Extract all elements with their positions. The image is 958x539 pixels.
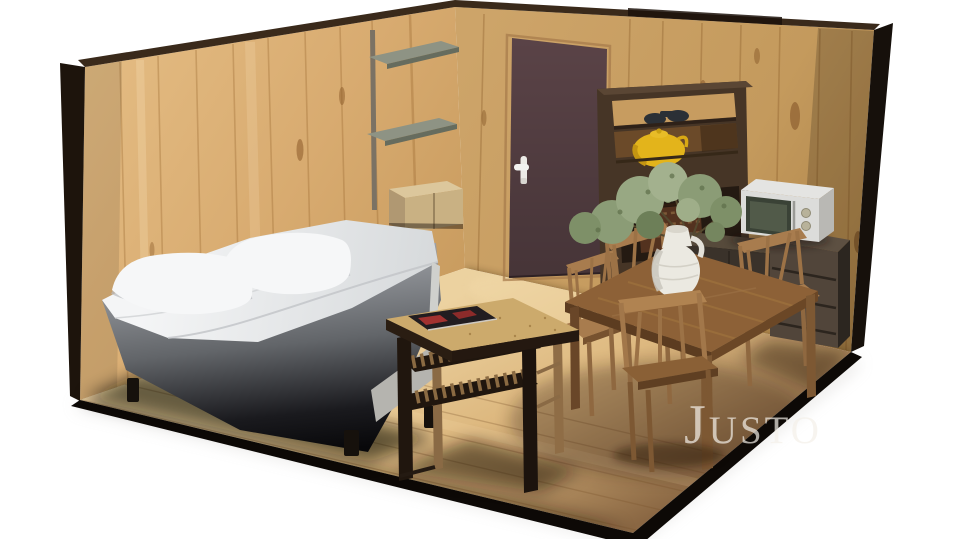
door xyxy=(504,35,610,280)
table-leg xyxy=(806,294,816,398)
bed-leg xyxy=(344,430,359,456)
wall-cabinet xyxy=(389,181,463,233)
table-leg xyxy=(570,306,580,410)
desk-leg xyxy=(522,347,538,493)
room-render: Justo xyxy=(0,0,958,539)
desk-leg xyxy=(397,335,413,481)
watermark-text: Justo xyxy=(684,394,822,456)
bed-leg xyxy=(127,378,139,402)
